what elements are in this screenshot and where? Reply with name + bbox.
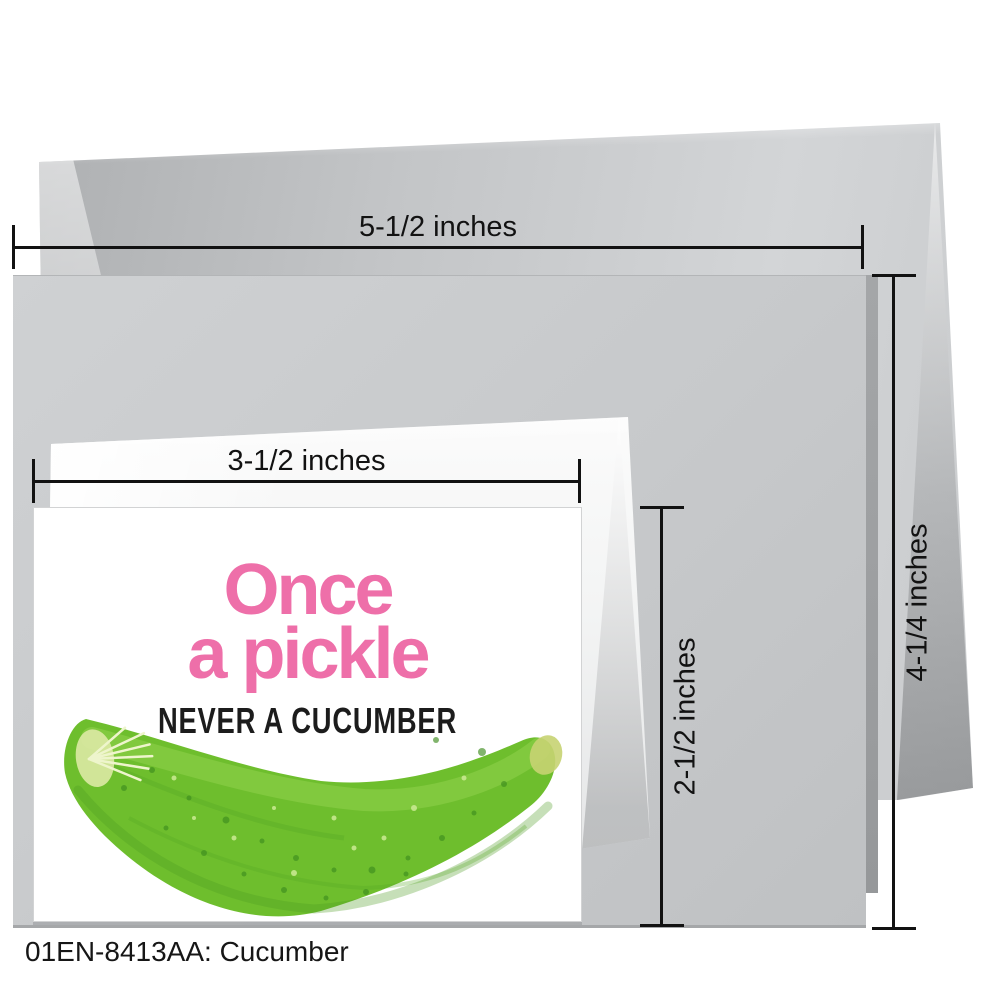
card-small: Once a pickle NEVER A CUCUMBER bbox=[33, 507, 582, 922]
card-subtitle: NEVER A CUCUMBER bbox=[100, 700, 516, 742]
measurement-line bbox=[32, 480, 581, 483]
measurement-line bbox=[12, 246, 864, 249]
measurement-label-card-small-height: 2-1/2 inches bbox=[670, 638, 703, 796]
measurement-line bbox=[892, 274, 895, 930]
measurement-label-card-large-height: 4-1/4 inches bbox=[902, 523, 935, 681]
measurement-card-small-width: 3-1/2 inches bbox=[32, 459, 581, 503]
measurement-card-small-height: 2-1/2 inches bbox=[640, 506, 684, 927]
card-title: Once a pickle bbox=[34, 558, 581, 686]
measurement-card-large-height: 4-1/4 inches bbox=[872, 274, 917, 930]
card-title-line1: Once bbox=[34, 558, 581, 622]
measurement-label-wrap: 4-1/4 inches bbox=[896, 274, 940, 930]
measurement-line bbox=[660, 506, 663, 927]
measurement-label-envelope-width: 5-1/2 inches bbox=[12, 211, 864, 244]
product-mockup-page: Once a pickle NEVER A CUCUMBER 5-1/2 inc… bbox=[0, 0, 984, 984]
measurement-label-card-small-width: 3-1/2 inches bbox=[32, 445, 581, 478]
product-code-caption: 01EN-8413AA: Cucumber bbox=[25, 936, 349, 968]
measurement-envelope-width: 5-1/2 inches bbox=[12, 225, 864, 269]
measurement-label-wrap: 2-1/2 inches bbox=[664, 506, 708, 927]
card-title-line2: a pickle bbox=[34, 622, 581, 686]
